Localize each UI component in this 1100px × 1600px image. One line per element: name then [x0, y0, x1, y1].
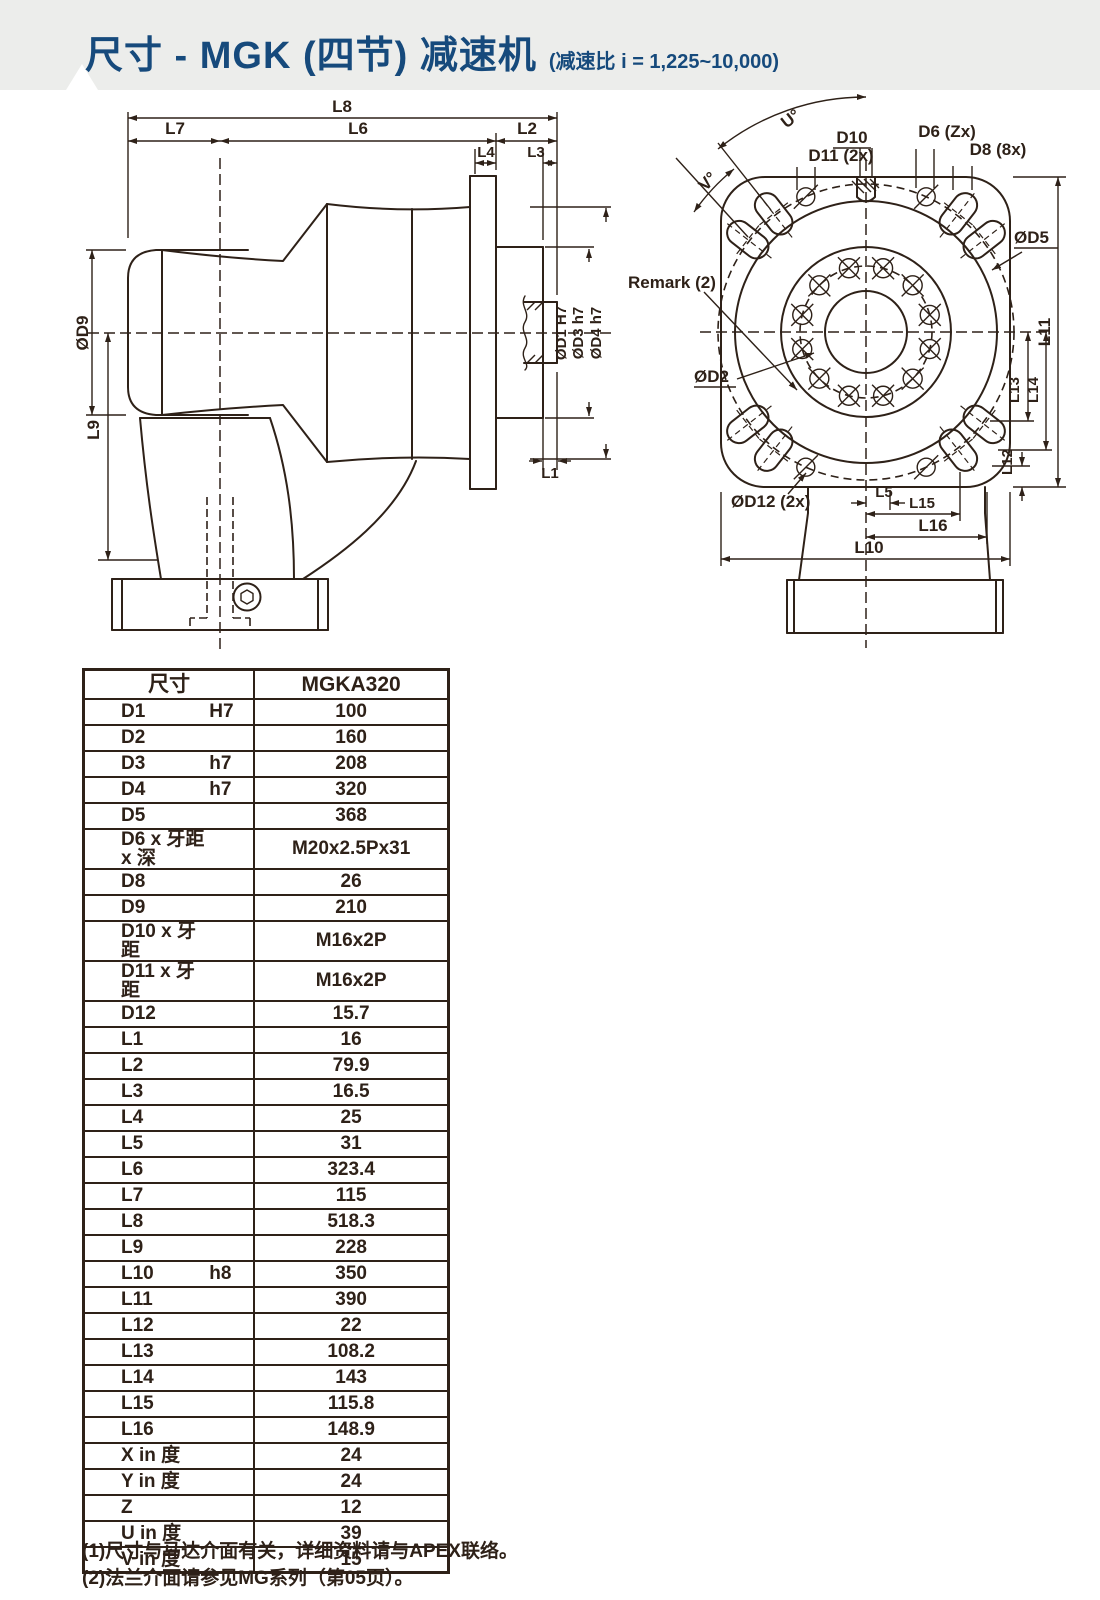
label-D9: ØD9	[73, 316, 92, 351]
dim-name: L9	[121, 1238, 209, 1257]
table-row: D5368	[84, 803, 449, 829]
dim-tolerance: h8	[209, 1264, 241, 1283]
dim-value: 350	[254, 1261, 448, 1287]
table-row: L316.5	[84, 1079, 449, 1105]
label-D8: D8 (8x)	[970, 140, 1027, 159]
label-L16: L16	[918, 516, 947, 535]
leader-D5	[992, 252, 1022, 270]
dim-value: 31	[254, 1131, 448, 1157]
dim-name: Z	[121, 1498, 209, 1517]
label-D10: D10	[836, 128, 867, 147]
cone-top	[162, 204, 327, 261]
dim-name: D6 x 牙距 x 深	[121, 830, 209, 868]
label-L5: L5	[875, 484, 893, 501]
dim-name: L2	[121, 1056, 209, 1075]
label-L1: L1	[541, 465, 559, 482]
dim-value: 143	[254, 1365, 448, 1391]
table-row: D1215.7	[84, 1001, 449, 1027]
footnote-2: (2)法兰介面请参见MG系列（第05页）。	[82, 1565, 518, 1592]
catalog-page: 尺寸 - MGK (四节) 减速机 (减速比 i = 1,225~10,000)	[0, 0, 1100, 1600]
table-row: L279.9	[84, 1053, 449, 1079]
bell-left-profile	[140, 418, 161, 579]
table-row: L1222	[84, 1313, 449, 1339]
dim-value: 115.8	[254, 1391, 448, 1417]
dim-value: 12	[254, 1495, 448, 1521]
table-row: L7115	[84, 1183, 449, 1209]
dim-tolerance: H7	[209, 702, 241, 721]
label-D2: ØD2	[694, 367, 729, 386]
label-remark: Remark (2)	[628, 273, 716, 292]
dim-value: 16	[254, 1027, 448, 1053]
label-D4: ØD4 h7	[588, 307, 605, 360]
dim-table-body: 尺寸 MGKA320 D1H7100D2160D3h7208D4h7320D53…	[84, 670, 449, 1573]
dim-value: 518.3	[254, 1209, 448, 1235]
leader-D2	[737, 353, 814, 379]
side-view-drawing: L8 L7 L6 L2 L4 L3 ØD9 L9 ØD1 H7 ØD3 h7 Ø…	[73, 97, 612, 650]
dim-name: D12	[121, 1004, 209, 1023]
dim-name: L15	[121, 1394, 209, 1413]
label-L11: L11	[1035, 318, 1054, 346]
dim-name: L4	[121, 1108, 209, 1127]
label-L6: L6	[348, 119, 368, 138]
label-L12: L12	[999, 449, 1016, 475]
label-L10: L10	[854, 538, 883, 557]
table-row: L8518.3	[84, 1209, 449, 1235]
table-row: D3h7208	[84, 751, 449, 777]
dim-name: L14	[121, 1368, 209, 1387]
label-D6: D6 (Zx)	[918, 122, 976, 141]
table-row: L116	[84, 1027, 449, 1053]
label-D11: D11 (2x)	[808, 146, 873, 165]
table-row: D826	[84, 869, 449, 895]
column-header-model: MGKA320	[254, 670, 448, 699]
table-row: L9228	[84, 1235, 449, 1261]
dim-name: L5	[121, 1134, 209, 1153]
dim-value: 100	[254, 699, 448, 725]
table-row: L14143	[84, 1365, 449, 1391]
dim-name: D11 x 牙距	[121, 962, 209, 1000]
dim-name: D8	[121, 872, 209, 891]
table-row: L11390	[84, 1287, 449, 1313]
dim-value: 26	[254, 869, 448, 895]
dim-name: L1	[121, 1030, 209, 1049]
front-view-drawing: U° V° D10 D11 (2x) D6 (Zx) D8 (8x) ØD5 R…	[628, 97, 1066, 648]
dim-name: L3	[121, 1082, 209, 1101]
table-row: L6323.4	[84, 1157, 449, 1183]
label-L13: L13	[1006, 377, 1023, 403]
dim-value: M20x2.5Px31	[254, 829, 448, 869]
body-bottom	[327, 458, 470, 462]
label-L7: L7	[165, 119, 185, 138]
dim-name: D5	[121, 806, 209, 825]
label-D12: ØD12 (2x)	[731, 492, 810, 511]
footnote-1: (1)尺寸与马达介面有关，详细资料请与APEX联络。	[82, 1538, 518, 1565]
label-D1: ØD1 H7	[553, 306, 570, 360]
table-row: L425	[84, 1105, 449, 1131]
dim-value: 160	[254, 725, 448, 751]
label-L15: L15	[909, 495, 935, 512]
dim-name: D9	[121, 898, 209, 917]
dim-value: 208	[254, 751, 448, 777]
table-row: D4h7320	[84, 777, 449, 803]
dim-value: 115	[254, 1183, 448, 1209]
table-row: L531	[84, 1131, 449, 1157]
label-D5: ØD5	[1014, 228, 1049, 247]
table-row: L15115.8	[84, 1391, 449, 1417]
dim-name: D2	[121, 728, 209, 747]
dim-value: 368	[254, 803, 448, 829]
dim-tolerance: h7	[209, 754, 241, 773]
dim-name: L10	[121, 1264, 209, 1283]
bell-right-profile	[303, 461, 416, 579]
dim-name: X in 度	[121, 1446, 209, 1465]
label-L9: L9	[84, 420, 103, 440]
dim-value: 22	[254, 1313, 448, 1339]
footnotes: (1)尺寸与马达介面有关，详细资料请与APEX联络。 (2)法兰介面请参见MG系…	[82, 1538, 518, 1592]
dim-value: 320	[254, 777, 448, 803]
dim-value: 25	[254, 1105, 448, 1131]
dim-name: L7	[121, 1186, 209, 1205]
label-U: U°	[777, 105, 804, 132]
dim-name: L13	[121, 1342, 209, 1361]
dim-name: L6	[121, 1160, 209, 1179]
dim-value: 16.5	[254, 1079, 448, 1105]
body-top	[327, 204, 470, 209]
dim-name: D3	[121, 754, 209, 773]
label-L2: L2	[517, 119, 537, 138]
dim-name: L16	[121, 1420, 209, 1439]
dim-tolerance: h7	[209, 780, 241, 799]
label-L3: L3	[527, 144, 545, 161]
dim-value: 323.4	[254, 1157, 448, 1183]
dim-value: M16x2P	[254, 961, 448, 1001]
technical-drawings: L8 L7 L6 L2 L4 L3 ØD9 L9 ØD1 H7 ØD3 h7 Ø…	[0, 0, 1100, 660]
dim-name: D4	[121, 780, 209, 799]
dim-name: Y in 度	[121, 1472, 209, 1491]
table-row: Z12	[84, 1495, 449, 1521]
dim-value: 24	[254, 1443, 448, 1469]
table-row: Y in 度24	[84, 1469, 449, 1495]
dim-value: 228	[254, 1235, 448, 1261]
dim-value: M16x2P	[254, 921, 448, 961]
dim-value: 108.2	[254, 1339, 448, 1365]
dim-name: L12	[121, 1316, 209, 1335]
table-row: L13108.2	[84, 1339, 449, 1365]
dim-value: 148.9	[254, 1417, 448, 1443]
table-row: D2160	[84, 725, 449, 751]
table-row: D1H7100	[84, 699, 449, 725]
hex-socket	[241, 590, 253, 604]
dim-name: L8	[121, 1212, 209, 1231]
table-header-row: 尺寸 MGKA320	[84, 670, 449, 699]
dim-value: 390	[254, 1287, 448, 1313]
dim-value: 79.9	[254, 1053, 448, 1079]
table-row: D6 x 牙距 x 深M20x2.5Px31	[84, 829, 449, 869]
table-row: L10h8350	[84, 1261, 449, 1287]
dim-name: L11	[121, 1290, 209, 1309]
label-L14: L14	[1025, 376, 1042, 403]
table-row: D9210	[84, 895, 449, 921]
label-L4: L4	[477, 144, 495, 161]
label-V: V°	[695, 168, 721, 194]
dim-value: 15.7	[254, 1001, 448, 1027]
table-row: D11 x 牙距M16x2P	[84, 961, 449, 1001]
socket-screw	[234, 584, 261, 611]
dim-name: D10 x 牙距	[121, 922, 209, 960]
bell-inner-profile	[270, 418, 294, 579]
table-row: X in 度24	[84, 1443, 449, 1469]
dim-value: 24	[254, 1469, 448, 1495]
label-D3: ØD3 h7	[570, 307, 587, 360]
column-header-dim: 尺寸	[84, 670, 255, 699]
table-row: L16148.9	[84, 1417, 449, 1443]
dim-name: D1	[121, 702, 209, 721]
dim-value: 210	[254, 895, 448, 921]
dimension-table: 尺寸 MGKA320 D1H7100D2160D3h7208D4h7320D53…	[82, 668, 450, 1574]
table-row: D10 x 牙距M16x2P	[84, 921, 449, 961]
cone-bottom	[162, 405, 327, 462]
label-L8: L8	[332, 97, 352, 116]
